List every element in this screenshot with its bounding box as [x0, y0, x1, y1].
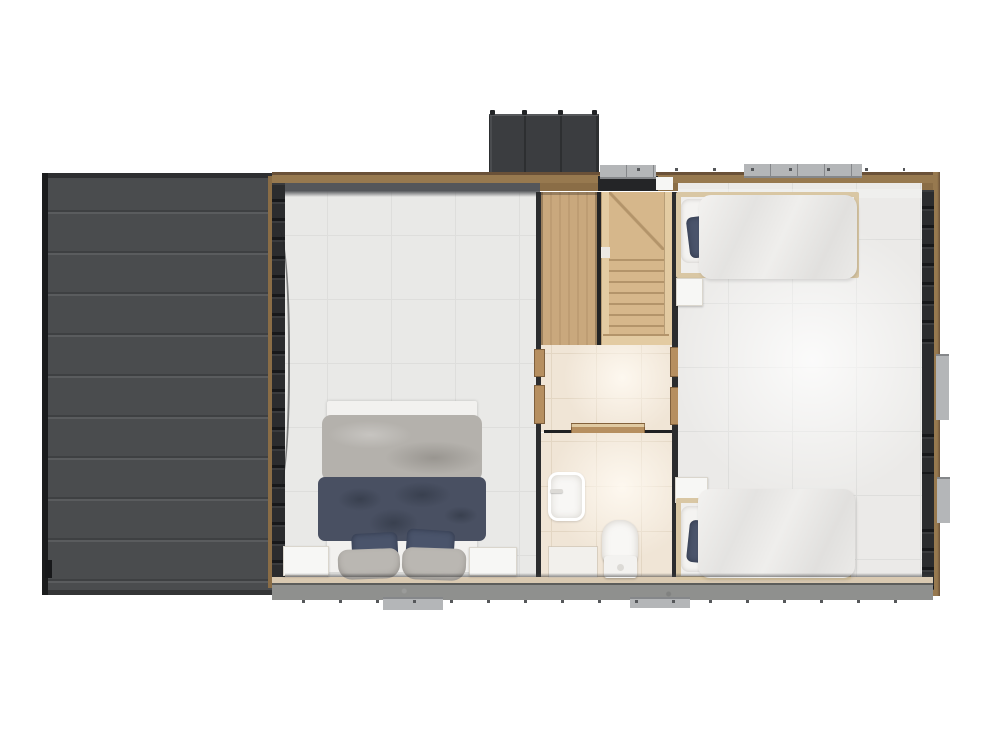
- stair-opening-marker: [656, 177, 673, 190]
- window-right-upper: [936, 354, 949, 420]
- bottom-wall-inner-shadow: [285, 573, 933, 577]
- stair-landing: [609, 192, 664, 250]
- screen-post-icon: [592, 110, 597, 115]
- hall-door-post: [534, 349, 545, 377]
- screen-post-icon: [558, 110, 563, 115]
- window-sill-bottom-left: [383, 597, 443, 610]
- double-bed-duvet: [322, 415, 482, 481]
- window-frame-top: [744, 164, 862, 178]
- stair-newel-cap: [601, 247, 610, 258]
- deck-left-edge: [42, 173, 48, 595]
- top-wall-inner-shadow: [285, 183, 540, 197]
- nightstand-right: [469, 547, 517, 576]
- screen-post-icon: [490, 110, 495, 115]
- floor-plan-canvas: [0, 0, 1000, 750]
- screen-post-icon: [522, 110, 527, 115]
- privacy-screen: [489, 114, 599, 179]
- double-bed-blanket: [318, 477, 486, 541]
- deck-top-edge: [45, 173, 272, 178]
- toilet-flush-button-icon: [617, 564, 624, 571]
- fastener-dots-top: [637, 168, 905, 171]
- deck-notch: [45, 560, 52, 578]
- fastener-dots-bottom: [302, 600, 898, 603]
- hallway-floor: [541, 345, 672, 432]
- nightstand-twin-top: [676, 278, 703, 306]
- window-right-lower: [937, 477, 950, 523]
- stair-treads: [609, 250, 664, 334]
- single-bed-top-duvet: [699, 195, 857, 279]
- deck-bottom-edge: [45, 590, 272, 595]
- single-bed-bottom-duvet: [698, 489, 855, 578]
- sink-faucet: [550, 489, 563, 493]
- bathroom-sink: [548, 472, 585, 521]
- bottom-wall: [272, 583, 933, 600]
- wardrobe: [541, 192, 597, 345]
- nightstand-left: [283, 546, 329, 576]
- hall-door-post: [534, 385, 545, 424]
- deck-surface: [45, 173, 272, 595]
